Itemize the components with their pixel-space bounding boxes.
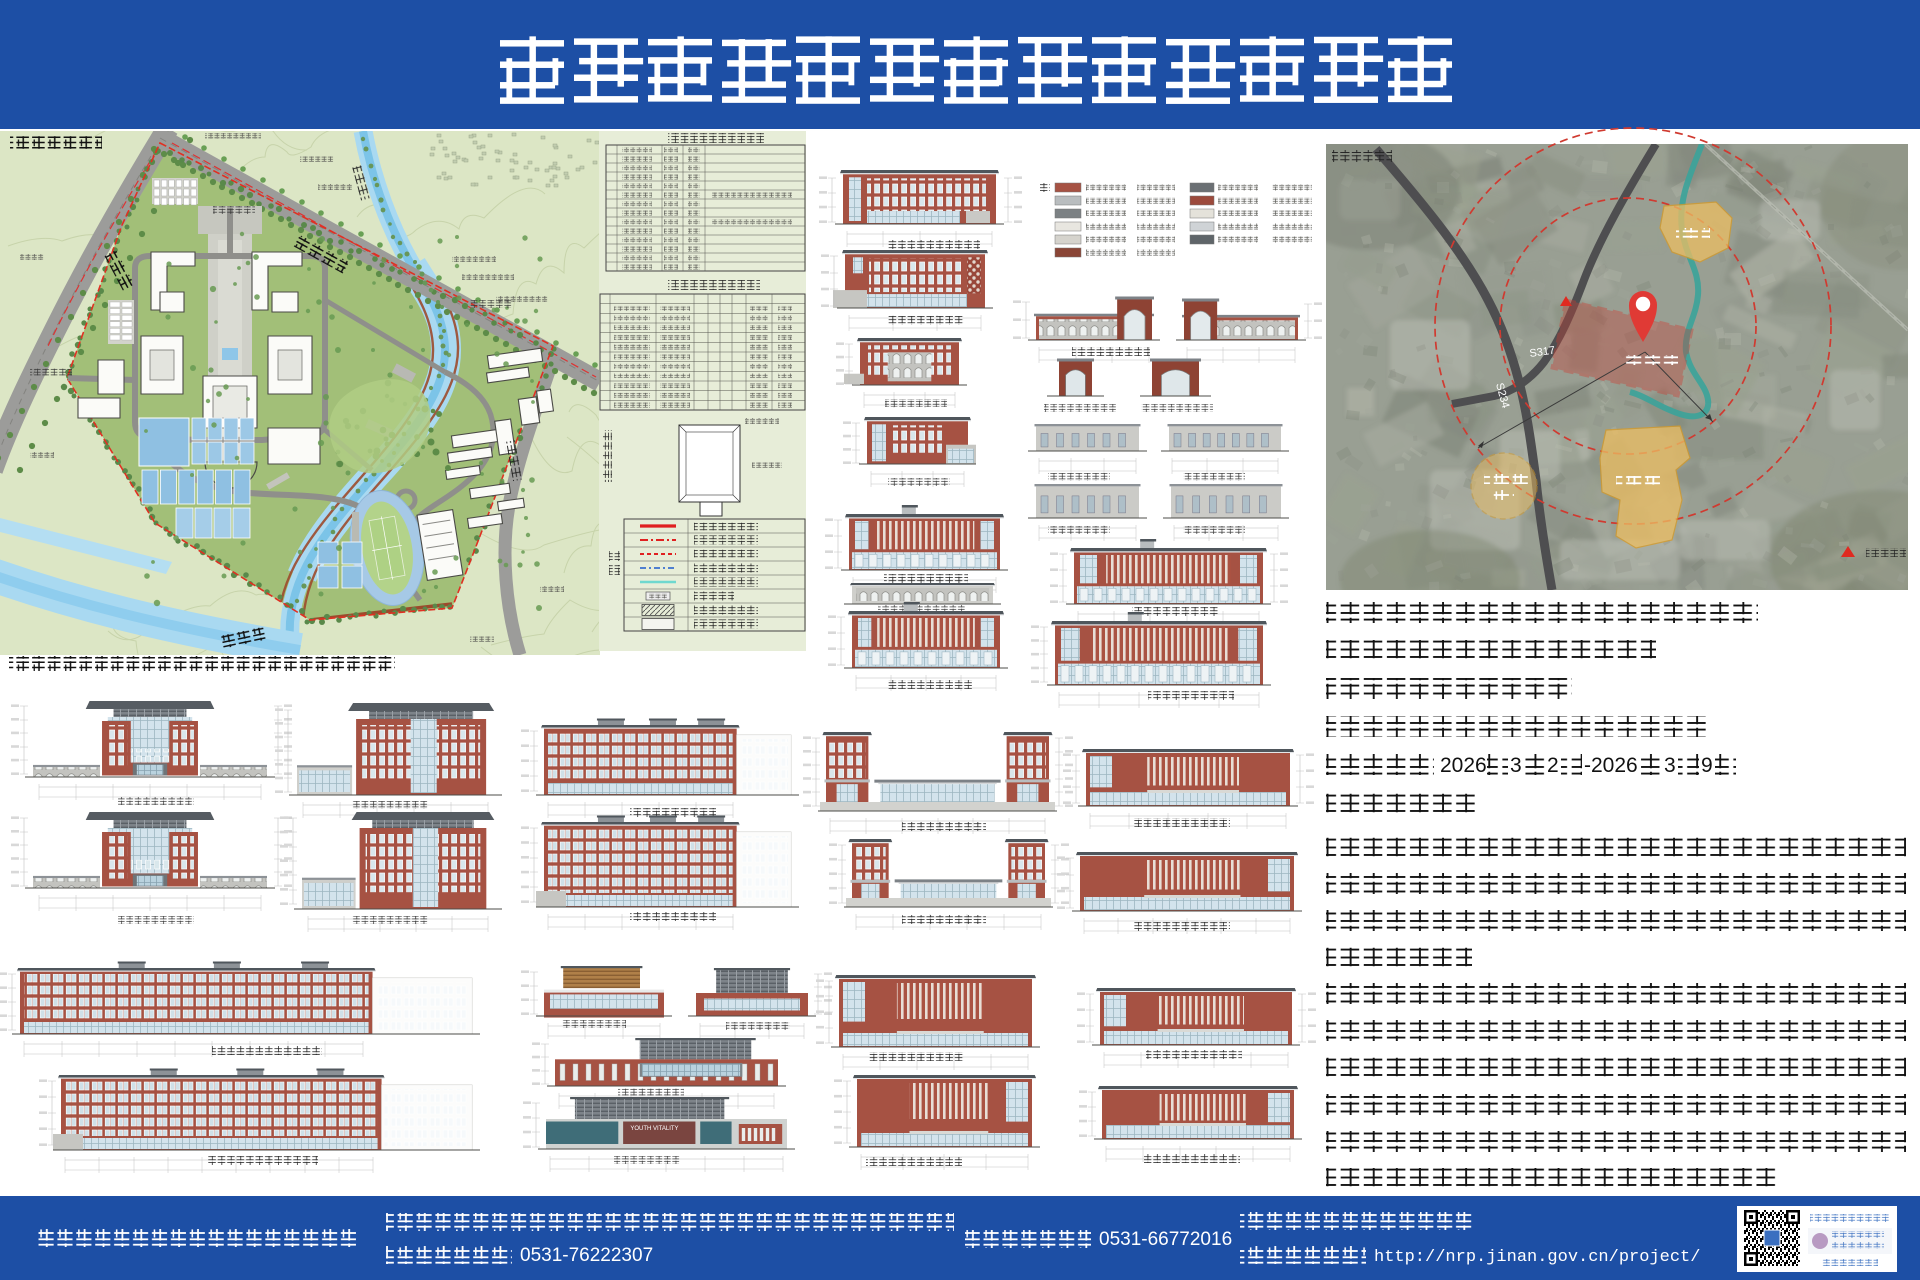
svg-text:9: 9 <box>1701 754 1713 777</box>
svg-text:2026: 2026 <box>1440 754 1487 777</box>
svg-text:0531-66772016: 0531-66772016 <box>1099 1229 1232 1250</box>
svg-text:YOUTH VITALITY: YOUTH VITALITY <box>630 1126 678 1132</box>
svg-text:0531-76222307: 0531-76222307 <box>520 1245 653 1266</box>
svg-text:-2026: -2026 <box>1584 754 1638 777</box>
svg-text:3: 3 <box>1510 754 1522 777</box>
svg-text:3: 3 <box>1664 754 1676 777</box>
svg-text:2: 2 <box>1547 754 1559 777</box>
svg-text:http://nrp.jinan.gov.cn/projec: http://nrp.jinan.gov.cn/project/ <box>1374 1248 1700 1267</box>
